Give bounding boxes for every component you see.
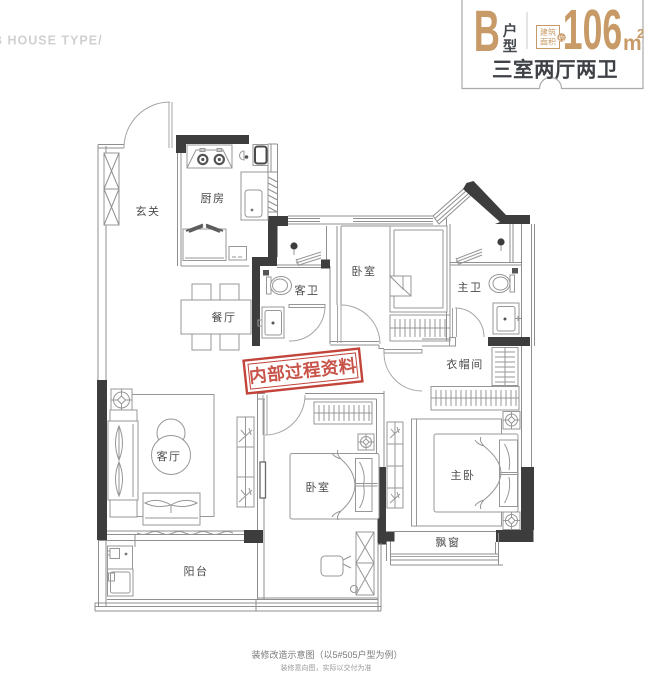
- svg-text:户: 户: [503, 22, 518, 40]
- svg-text:建筑: 建筑: [540, 27, 556, 37]
- svg-text:餐厅: 餐厅: [212, 310, 237, 324]
- svg-text:三室两厅两卫: 三室两厅两卫: [492, 58, 618, 82]
- svg-text:玄关: 玄关: [136, 204, 161, 218]
- svg-text:面积: 面积: [540, 37, 556, 47]
- svg-text:B HOUSE TYPE/: B HOUSE TYPE/: [0, 34, 103, 48]
- svg-text:衣帽间: 衣帽间: [446, 357, 484, 371]
- svg-text:卧室: 卧室: [306, 480, 331, 494]
- svg-text:卧室: 卧室: [352, 264, 377, 278]
- svg-text:B: B: [474, 0, 500, 64]
- svg-text:型: 型: [503, 38, 518, 56]
- svg-text:主卧: 主卧: [451, 469, 476, 482]
- svg-text:客卫: 客卫: [295, 283, 320, 297]
- svg-text:106: 106: [563, 0, 622, 62]
- svg-text:厨房: 厨房: [201, 192, 226, 205]
- svg-text:主卫: 主卫: [458, 281, 483, 294]
- svg-text:装修意向图，实际以交付为准: 装修意向图，实际以交付为准: [281, 663, 372, 672]
- svg-text:2: 2: [637, 26, 644, 41]
- svg-text:客厅: 客厅: [157, 449, 182, 463]
- svg-text:飘窗: 飘窗: [436, 535, 461, 549]
- svg-text:装修改造示意图（以5#505户型为例）: 装修改造示意图（以5#505户型为例）: [251, 649, 402, 660]
- svg-text:阳台: 阳台: [184, 564, 209, 578]
